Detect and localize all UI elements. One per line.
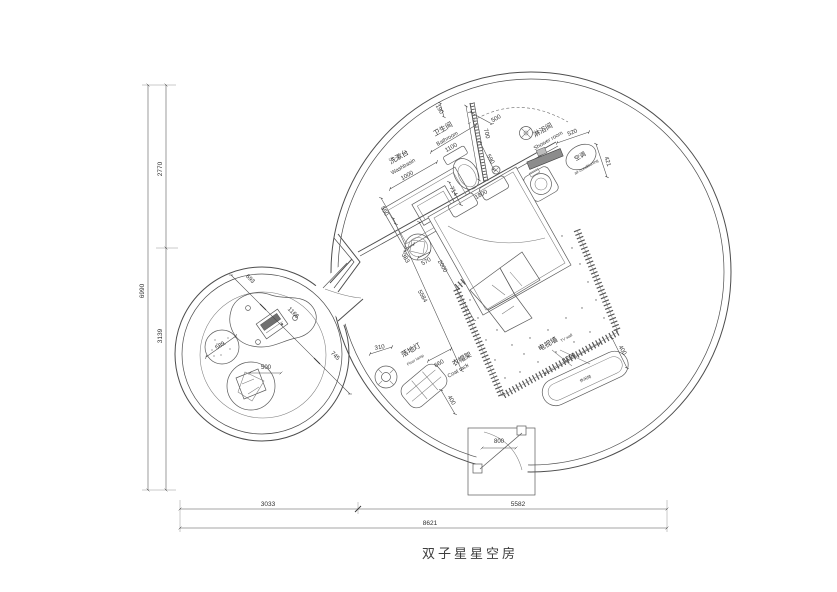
floor-plan-sheet: 6990 2770 3139 3033 5582 8621 693 1166 7…	[0, 0, 837, 592]
floor-plan-canvas: 6990 2770 3139 3033 5582 8621 693 1166 7…	[0, 0, 837, 592]
dim-washbasin-d: 550	[379, 206, 390, 218]
dim-shower-w: 500	[491, 114, 503, 125]
dim-bathroom-wall: 700	[482, 128, 491, 140]
kidney-table	[230, 293, 316, 347]
laptop	[256, 309, 288, 339]
dim-shower-side: 421	[603, 156, 612, 168]
coat-rack	[397, 360, 450, 411]
label-ac-zh: 空调	[573, 150, 587, 163]
dim-bed-length: 2000	[436, 259, 448, 274]
dim-pouf: 589	[215, 341, 227, 352]
dim-coatrack-w: 660	[434, 359, 446, 370]
label-lounge-chair: 休闲椅	[578, 373, 591, 384]
dim-v-total: 6990	[139, 283, 146, 298]
dim-stool-h: 570	[421, 257, 433, 268]
entrance-porch	[468, 426, 535, 495]
dim-h-left: 3033	[261, 501, 276, 508]
dim-lamp: 310	[374, 344, 386, 352]
dim-h-right: 5582	[511, 501, 526, 508]
dim-v-top: 2770	[157, 161, 164, 176]
dim-lounge-seg1: 693	[244, 274, 256, 286]
floor-drain-icon	[492, 166, 500, 174]
dim-door: 800	[494, 439, 505, 445]
dim-lounge-seg3: 745	[329, 351, 341, 363]
dim-stool-w: 383	[400, 253, 411, 265]
dim-v-bottom: 3139	[157, 328, 164, 343]
passage-between-rooms	[313, 259, 370, 325]
dim-beanbag: 500	[261, 365, 272, 371]
drawing-title: 双子星星空房	[422, 546, 518, 561]
dim-bathroom-gap: 190	[434, 104, 445, 116]
shower-drain-icon	[520, 127, 533, 140]
floor-lamp	[375, 366, 397, 388]
dim-drain: 590	[485, 154, 496, 166]
dim-h-total: 8621	[423, 520, 438, 527]
dim-toilet: 714	[448, 186, 459, 198]
dim-washbasin-w: 1000	[400, 170, 415, 182]
